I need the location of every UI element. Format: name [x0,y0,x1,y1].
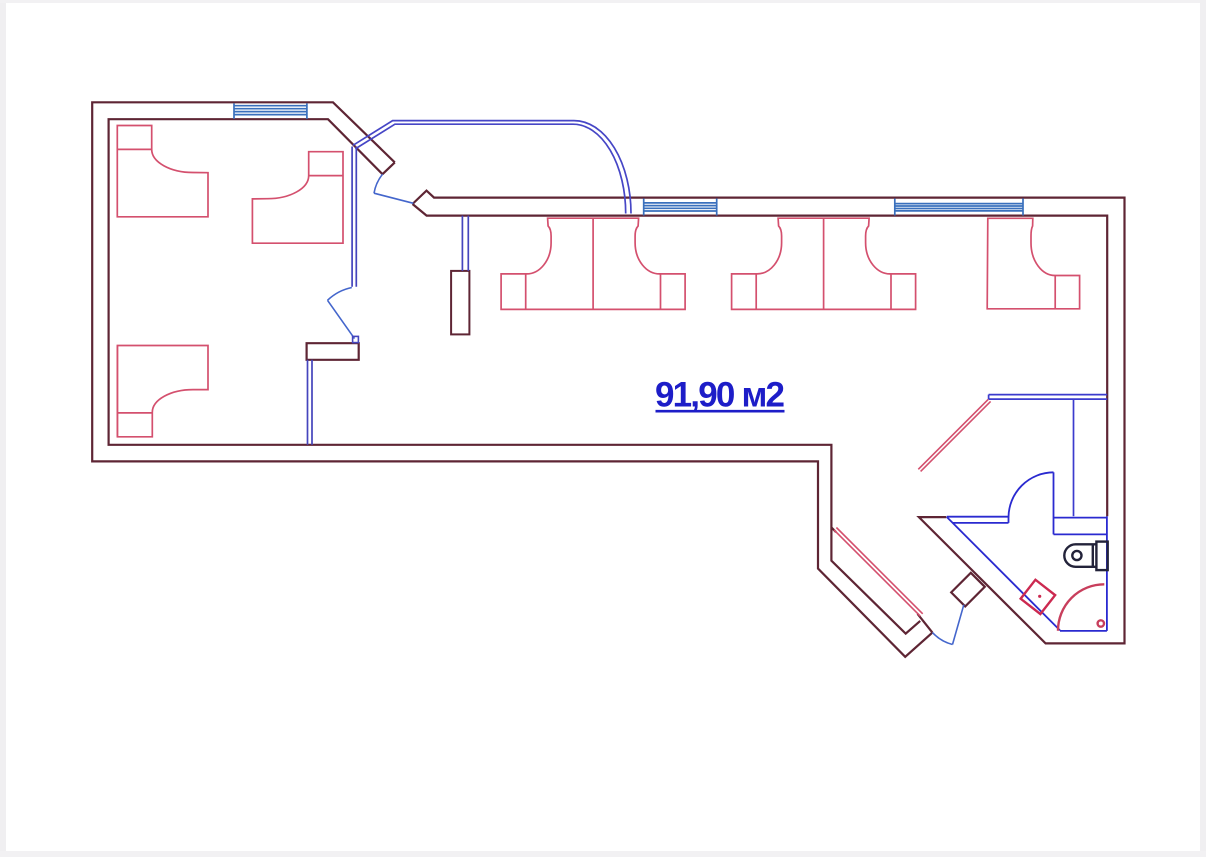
svg-text:91,90 м2: 91,90 м2 [655,376,785,415]
